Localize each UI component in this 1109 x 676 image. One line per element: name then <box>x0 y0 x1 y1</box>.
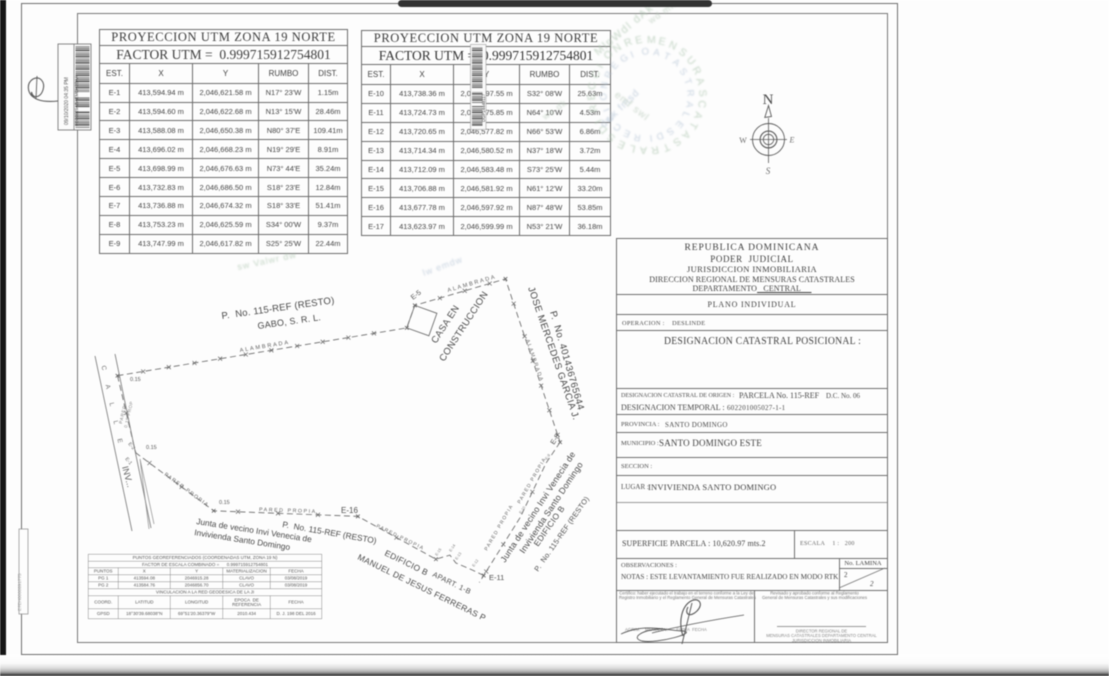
svg-text:S: S <box>766 166 771 176</box>
svg-text:T: T <box>662 51 672 63</box>
svg-text:L: L <box>679 110 691 119</box>
svg-text:A: A <box>679 128 693 141</box>
svg-text:M: M <box>647 34 656 46</box>
svg-text:N: N <box>599 81 611 89</box>
svg-text:E: E <box>616 137 627 151</box>
svg-text:0.15: 0.15 <box>130 377 141 383</box>
svg-text:E-10: E-10 <box>519 506 527 515</box>
svg-text:L: L <box>628 142 636 155</box>
svg-text:A: A <box>640 144 647 156</box>
svg-text:E-16: E-16 <box>341 506 358 515</box>
svg-text:S: S <box>677 66 690 78</box>
svg-text:E7EH0000891775: E7EH0000891775 <box>17 573 22 611</box>
svg-text:E: E <box>789 136 795 145</box>
svg-text:E-11: E-11 <box>489 573 504 582</box>
svg-text:A: A <box>691 110 705 120</box>
svg-text:A: A <box>693 76 707 86</box>
svg-text:N: N <box>763 92 774 108</box>
svg-text:E-5: E-5 <box>410 289 423 301</box>
svg-text:E-8: E-8 <box>550 433 562 446</box>
svg-text:E: E <box>585 93 598 101</box>
svg-text:E: E <box>634 34 643 47</box>
svg-text:E: E <box>116 438 124 444</box>
svg-text:E: E <box>673 118 686 130</box>
svg-text:I: I <box>594 62 606 71</box>
svg-text:T: T <box>660 140 671 154</box>
svg-text:sw Valwr dw: sw Valwr dw <box>236 250 297 272</box>
svg-text:PARED PROPIA: PARED PROPIA <box>375 523 425 552</box>
svg-text:lw emdw: lw emdw <box>421 254 464 278</box>
svg-text:E-14: E-14 <box>449 544 457 553</box>
svg-text:R: R <box>689 65 703 78</box>
svg-text:C: C <box>100 365 108 371</box>
svg-text:0.15: 0.15 <box>219 500 230 506</box>
svg-text:T: T <box>686 120 700 132</box>
svg-text:O: O <box>641 46 650 58</box>
svg-text:E: E <box>657 35 666 48</box>
svg-text:ws dk: ws dk <box>540 97 570 122</box>
svg-text:S: S <box>664 125 676 138</box>
svg-text:R: R <box>684 89 696 97</box>
svg-text:R: R <box>650 143 660 156</box>
svg-text:ALAMBRADA: ALAMBRADA <box>239 340 290 354</box>
svg-text:S: S <box>696 89 709 97</box>
svg-text:E-9: E-9 <box>545 453 552 460</box>
svg-text:I: I <box>649 132 653 143</box>
svg-text:A: A <box>653 47 661 59</box>
svg-text:FEC0929ABAEMDH2BAA: FEC0929ABAEMDH2BAA <box>74 75 79 126</box>
svg-text:C: C <box>586 81 599 90</box>
svg-text:E-15: E-15 <box>435 548 443 557</box>
svg-text:C: C <box>589 69 603 80</box>
svg-text:O: O <box>598 92 610 101</box>
svg-text:DGP14448117: DGP14448117 <box>481 93 486 122</box>
svg-text:R: R <box>603 69 616 80</box>
svg-text:PARED PROPIA: PARED PROPIA <box>163 472 210 509</box>
svg-text:A: A <box>670 57 682 70</box>
svg-text:E-13: E-13 <box>455 552 463 561</box>
svg-text:E: E <box>609 60 622 72</box>
svg-text:G: G <box>618 52 631 65</box>
svg-text:0.15: 0.15 <box>146 445 157 451</box>
svg-text:T: T <box>681 77 693 87</box>
svg-text:W: W <box>739 136 747 145</box>
svg-text:PARED PROPIA: PARED PROPIA <box>259 507 317 515</box>
svg-text:C: C <box>695 100 708 109</box>
svg-text:09/10/2020 04:35 PM: 09/10/2020 04:35 PM <box>64 77 70 125</box>
svg-text:L: L <box>108 402 116 407</box>
svg-text:R: R <box>587 102 601 113</box>
svg-text:R: R <box>633 131 641 143</box>
svg-text:I: I <box>629 50 636 61</box>
svg-text:E: E <box>622 127 632 140</box>
svg-text:D: D <box>654 129 665 142</box>
svg-text:E-12: E-12 <box>472 559 480 568</box>
svg-text:ALAMBRADA: ALAMBRADA <box>524 339 544 383</box>
svg-text:A: A <box>104 384 112 390</box>
svg-text:E-1: E-1 <box>123 456 133 466</box>
svg-text:A: A <box>683 101 695 109</box>
